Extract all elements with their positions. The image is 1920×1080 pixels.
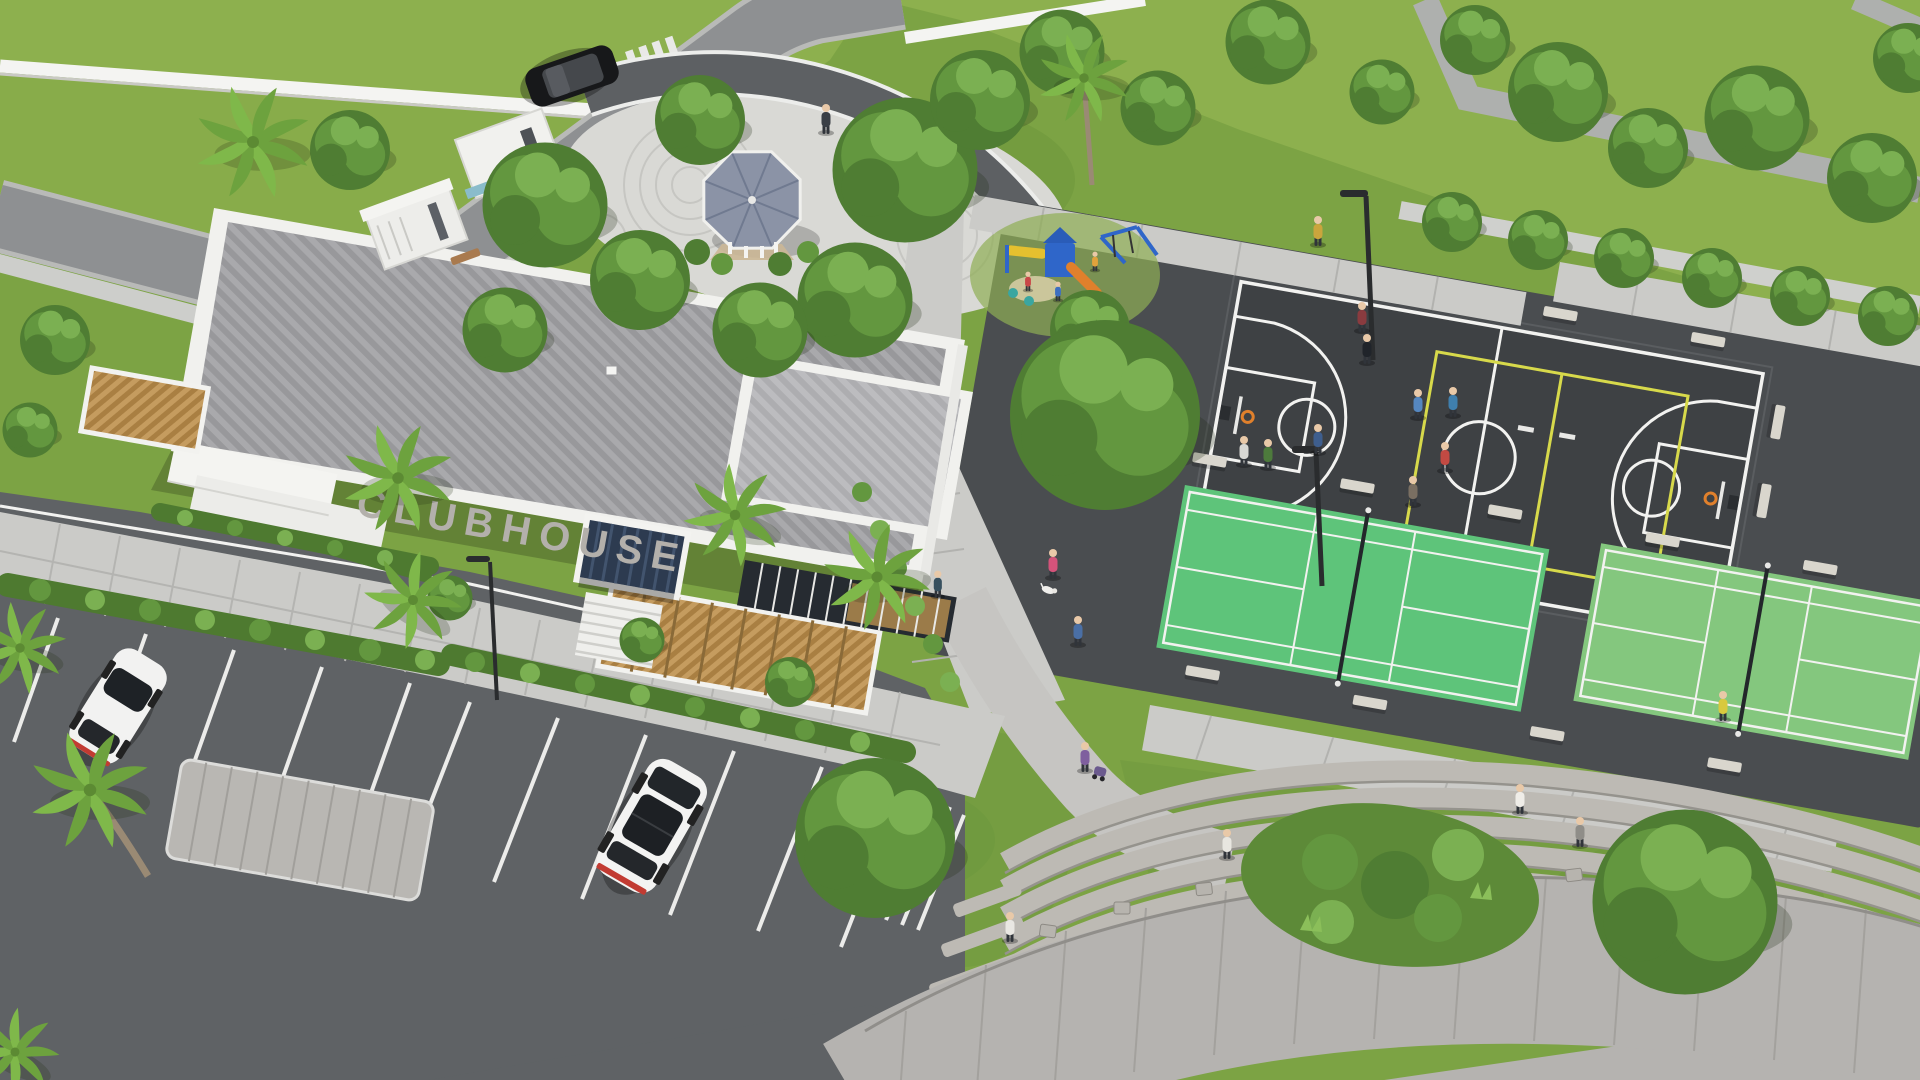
spring-rider (1008, 288, 1018, 298)
light-pole-head (1340, 190, 1368, 197)
sand-pit (1009, 276, 1061, 302)
light-pole-head (466, 556, 490, 562)
spring-rider (1024, 296, 1034, 306)
roof-vent (606, 366, 617, 375)
roof-finial (748, 196, 756, 204)
aerial-site-rendering: ♿ (0, 0, 1920, 1080)
rendering-canvas: ♿ (0, 0, 1920, 1080)
